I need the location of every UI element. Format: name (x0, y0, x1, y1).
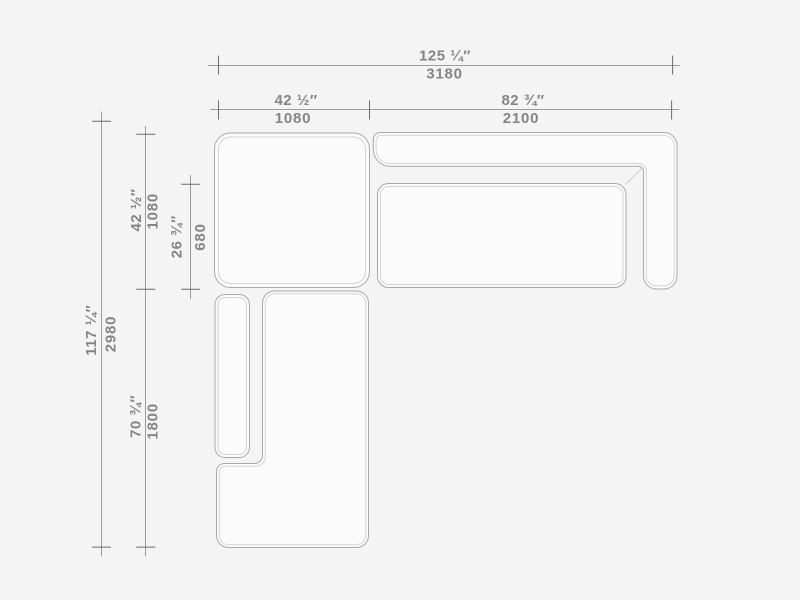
svg-text:1800: 1800 (145, 403, 162, 440)
svg-text:82 ¾″: 82 ¾″ (501, 92, 544, 109)
svg-text:2100: 2100 (503, 110, 540, 127)
svg-text:680: 680 (192, 223, 209, 250)
svg-text:2980: 2980 (103, 316, 120, 353)
svg-text:42 ½″: 42 ½″ (128, 188, 145, 231)
svg-text:117 ¼″: 117 ¼″ (83, 305, 100, 356)
svg-text:70 ¾″: 70 ¾″ (128, 395, 145, 438)
svg-text:1080: 1080 (145, 193, 162, 230)
svg-text:26 ¾″: 26 ¾″ (169, 215, 186, 258)
svg-text:42 ½″: 42 ½″ (274, 92, 317, 109)
svg-text:125 ¼″: 125 ¼″ (419, 48, 471, 65)
svg-text:1080: 1080 (275, 110, 312, 127)
svg-text:3180: 3180 (426, 66, 463, 83)
